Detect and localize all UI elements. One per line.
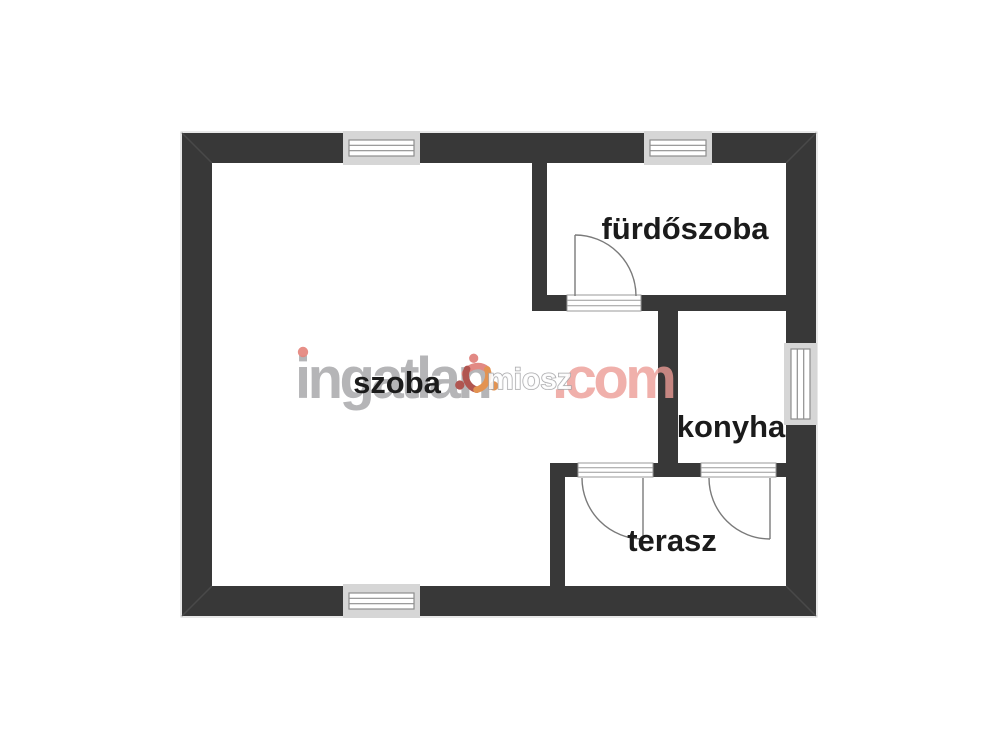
konyha-east-window-icon (784, 343, 817, 425)
wall-terasz-north-right (776, 463, 786, 477)
szoba-north-window-icon (343, 131, 420, 165)
szoba-terasz-door-threshold (578, 463, 653, 477)
watermark-i-dot (298, 347, 308, 357)
miosz-logo-text: miosz (487, 363, 572, 396)
furdoszoba-north-window-icon (644, 131, 712, 165)
floor-plan-page: ingatlan .com miosz (0, 0, 1000, 750)
wall-szoba-terasz (550, 477, 565, 586)
watermark: ingatlan .com miosz (295, 346, 673, 411)
room-label-furdoszoba: fürdőszoba (601, 211, 769, 246)
wall-exterior-north (182, 133, 816, 163)
szoba-south-window-icon (343, 584, 420, 618)
wall-szoba-furdoszoba (532, 163, 547, 310)
room-label-terasz: terasz (627, 523, 717, 558)
wall-terasz-north-mid (653, 463, 701, 477)
floor-plan: ingatlan .com miosz (0, 0, 1000, 750)
furdoszoba-door-threshold (567, 295, 641, 311)
wall-exterior-south (182, 586, 816, 616)
konyha-terasz-door-threshold (701, 463, 776, 477)
room-label-konyha: konyha (677, 409, 786, 444)
wall-furdoszoba-south-right (641, 295, 786, 311)
room-label-szoba: szoba (353, 365, 442, 400)
konyha-terasz-door-swing-icon (709, 478, 770, 539)
wall-furdoszoba-south-left (532, 295, 568, 311)
wall-exterior-west (182, 133, 212, 616)
wall-terasz-north-left (550, 463, 578, 477)
